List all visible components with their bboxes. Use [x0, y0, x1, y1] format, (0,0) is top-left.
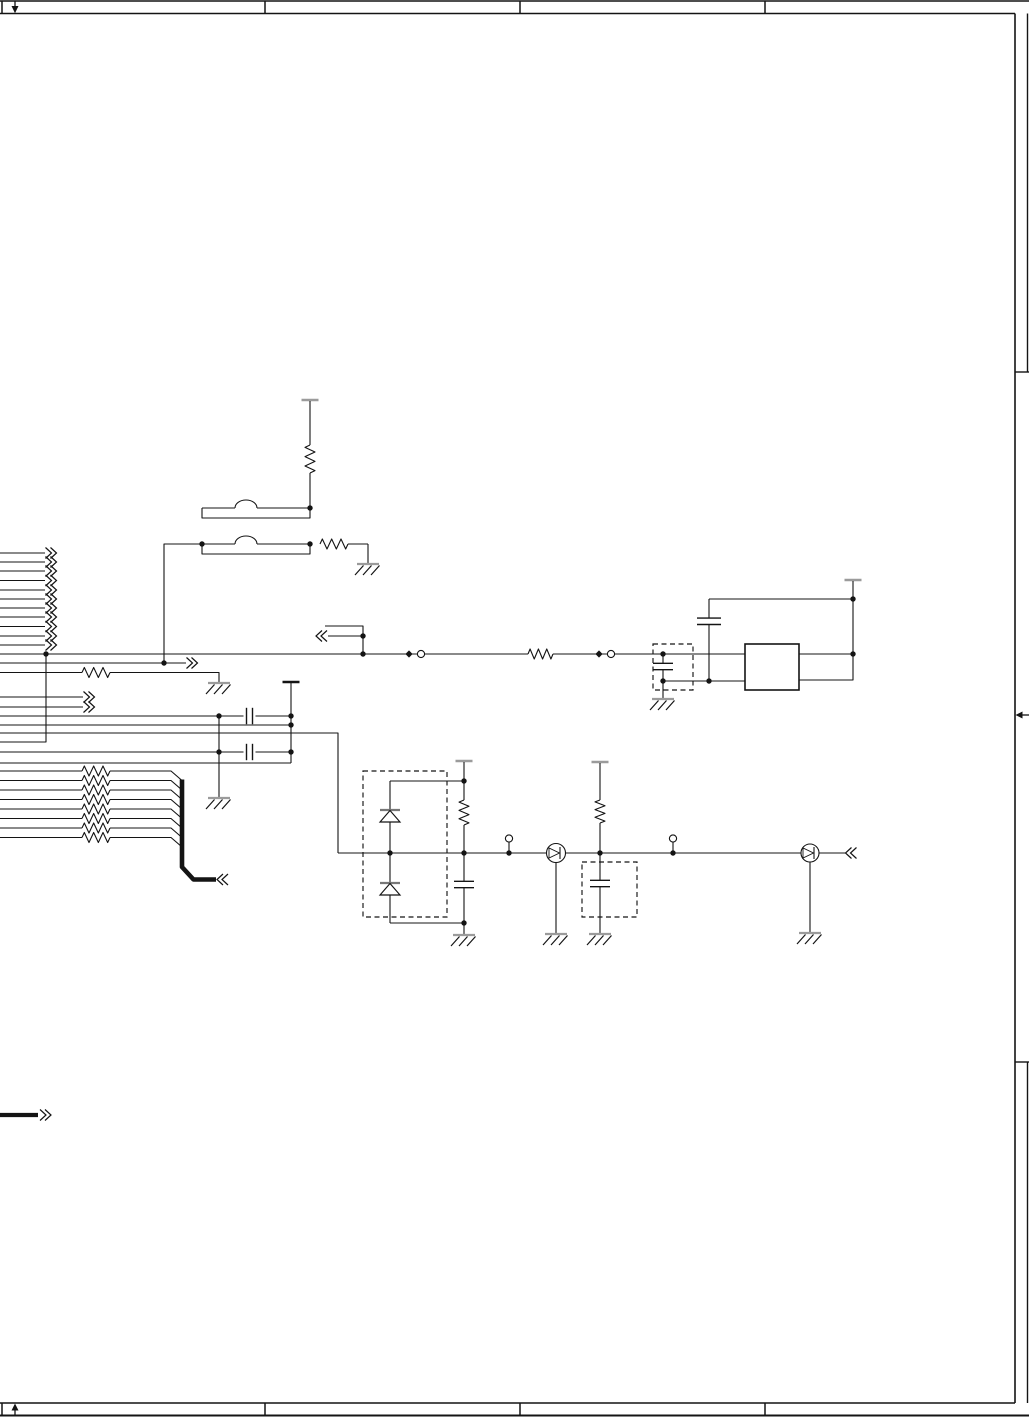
ground-3-hatch	[658, 701, 667, 711]
resistor-h-7	[82, 795, 110, 805]
jumper-2-body	[202, 544, 310, 554]
connector-out	[40, 1110, 46, 1121]
resistor-h-6	[82, 785, 110, 795]
bus-line	[110, 838, 182, 848]
bus-line	[110, 800, 182, 810]
connector-socket	[607, 650, 614, 657]
fold-arrow-left-head	[1016, 712, 1023, 719]
ground-1-hatch	[363, 566, 372, 576]
ground-7-hatch	[459, 937, 468, 947]
connector-in	[222, 874, 228, 885]
ground-4-hatch	[222, 800, 231, 810]
dashed-box-1	[653, 644, 693, 690]
schematic-page	[0, 0, 1029, 1417]
connector-out	[84, 702, 90, 713]
ground-3-hatch	[650, 701, 659, 711]
dashed-box-3	[582, 862, 637, 917]
connector-out	[187, 658, 193, 669]
transistor-2-body	[801, 844, 819, 862]
connector-in	[851, 848, 857, 859]
connector-pin	[405, 650, 412, 657]
jumper-1-hump	[235, 500, 257, 508]
resistor-h-3	[82, 668, 110, 678]
bus-line	[110, 819, 182, 829]
junction-dot	[461, 778, 466, 783]
bus-line	[110, 828, 182, 838]
wire	[110, 673, 219, 683]
test-point	[505, 835, 512, 842]
dashed-box-2	[363, 771, 447, 917]
cable-bundle	[182, 780, 216, 880]
junction-dot	[850, 651, 855, 656]
ground-6-hatch	[797, 935, 806, 945]
connector-in	[321, 631, 327, 642]
wire	[0, 654, 46, 742]
bus-line	[110, 781, 182, 791]
ground-5-hatch	[543, 936, 552, 946]
connector-socket	[417, 650, 424, 657]
ground-5-hatch	[559, 936, 568, 946]
ground-6-hatch	[813, 935, 822, 945]
connector-out	[46, 621, 52, 632]
fold-arrow-down-head	[12, 6, 19, 13]
jumper-2-hump	[235, 536, 257, 544]
test-point	[669, 835, 676, 842]
ground-3-hatch	[666, 701, 675, 711]
resistor-v-2	[459, 800, 469, 825]
diode-2-triangle	[380, 884, 400, 896]
connector-out	[46, 575, 52, 586]
ground-4-hatch	[214, 800, 223, 810]
junction-dot	[161, 660, 166, 665]
connector-pin	[595, 650, 602, 657]
jumper-1-body	[202, 508, 310, 518]
ground-7-hatch	[467, 937, 476, 947]
schematic-canvas	[0, 0, 1029, 1417]
ground-7-hatch	[451, 937, 460, 947]
ground-1-hatch	[371, 566, 380, 576]
ground-8-hatch	[595, 936, 604, 946]
ground-5-hatch	[551, 936, 560, 946]
ground-4-hatch	[206, 800, 215, 810]
diode-1-triangle	[380, 811, 400, 823]
junction-dot	[360, 651, 365, 656]
resistor-v-3	[595, 800, 605, 823]
bus-line	[110, 771, 182, 781]
wire	[164, 544, 202, 663]
connector-out	[84, 692, 90, 703]
junction-dot	[307, 541, 312, 546]
resistor-h-5	[82, 776, 110, 786]
ground-2-hatch	[222, 685, 231, 695]
fold-arrow-up-head	[12, 1404, 19, 1411]
ground-8-hatch	[587, 936, 596, 946]
ground-1-hatch	[355, 566, 364, 576]
ground-2-hatch	[206, 685, 215, 695]
resistor-h-8	[82, 804, 110, 814]
ground-6-hatch	[805, 935, 814, 945]
jumper-3-body	[325, 626, 363, 636]
component-box	[745, 644, 799, 690]
wire	[799, 599, 853, 680]
resistor-v-1	[305, 445, 315, 473]
wire	[0, 733, 338, 853]
resistor-h-11	[82, 833, 110, 843]
resistor-h-4	[82, 766, 110, 776]
ground-2-hatch	[214, 685, 223, 695]
resistor-h-10	[82, 823, 110, 833]
bus-line	[110, 790, 182, 800]
bus-line	[110, 809, 182, 819]
resistor-h-9	[82, 814, 110, 824]
ground-8-hatch	[603, 936, 612, 946]
resistor-h-2	[528, 649, 553, 659]
resistor-h-1	[320, 539, 348, 549]
